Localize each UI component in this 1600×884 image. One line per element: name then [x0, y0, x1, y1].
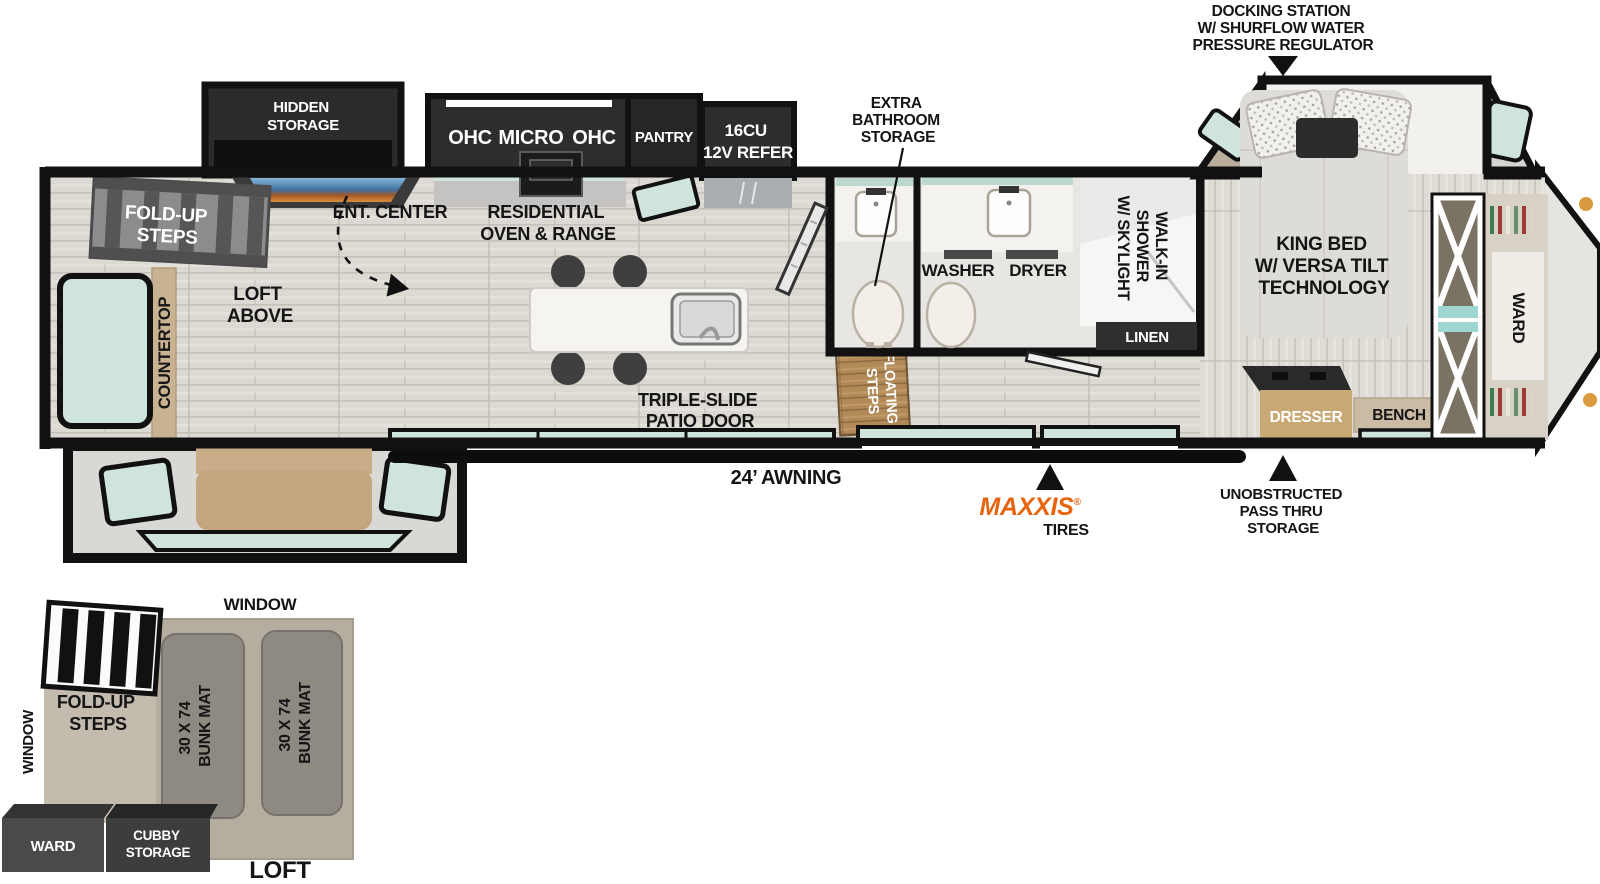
- bathroom-block: WASHER DRYER WALK-IN SHOWER W/ SKYLIGHT …: [830, 172, 1200, 352]
- laundry-sink: [988, 190, 1030, 236]
- docking-station-arrow: [1268, 56, 1298, 76]
- stool: [551, 351, 585, 385]
- loft-fold-up-steps-frame: [43, 602, 161, 694]
- dresser-label: DRESSER: [1270, 409, 1343, 426]
- rear-fold-up-steps: FOLD-UP STEPS: [90, 177, 270, 266]
- floating-steps: FLOATING STEPS: [836, 346, 910, 436]
- ohc-left-label: OHC: [448, 127, 492, 149]
- main-floorplan: HIDDEN STORAGE OHC MICRO OHC PANTRY: [45, 80, 1600, 558]
- wardrobe: WARD: [1432, 194, 1548, 440]
- cap-hinge-top: [1579, 197, 1593, 211]
- pantry: PANTRY: [628, 96, 700, 221]
- rear-window: [60, 276, 150, 426]
- slideout-window-right: [381, 458, 450, 520]
- pass-thru-label: UNOBSTRUCTED PASS THRU STORAGE: [1220, 486, 1346, 537]
- docking-station-label: DOCKING STATION W/ SHURFLOW WATER PRESSU…: [1193, 3, 1374, 54]
- pass-thru-storage: UNOBSTRUCTED PASS THRU STORAGE: [1220, 455, 1346, 537]
- pantry-label: PANTRY: [635, 129, 693, 146]
- ohc-right-label: OHC: [572, 127, 616, 149]
- bench-label: BENCH: [1372, 407, 1426, 424]
- hidden-storage-label: HIDDEN STORAGE: [267, 99, 339, 134]
- slideout-window-bottom: [140, 532, 408, 550]
- floorplan-svg: HIDDEN STORAGE OHC MICRO OHC PANTRY: [0, 0, 1600, 884]
- tires-arrow: [1036, 464, 1064, 490]
- stool: [551, 255, 585, 289]
- maxxis-logo: MAXXIS®: [979, 493, 1081, 521]
- bottom-window-1: [858, 427, 1034, 440]
- stool: [613, 255, 647, 289]
- loft-inset: FOLD-UP STEPS 30 X 74 BUNK MAT 30 X 74 B…: [2, 595, 353, 884]
- dryer-label: DRYER: [1009, 261, 1066, 280]
- tv-screen: [250, 178, 406, 202]
- micro-label: MICRO: [498, 127, 563, 149]
- tires-label: TIRES: [1043, 522, 1089, 539]
- hidden-storage-slideout: HIDDEN STORAGE: [205, 85, 401, 175]
- loft-above-label: LOFT ABOVE: [227, 284, 293, 327]
- patio-door-label: TRIPLE-SLIDE PATIO DOOR: [638, 390, 762, 431]
- laundry-toilet: [927, 283, 975, 347]
- king-bed: KING BED W/ VERSA TILT TECHNOLOGY: [1240, 88, 1412, 338]
- slideout-window-left: [100, 460, 175, 525]
- pass-thru-arrow: [1269, 455, 1297, 481]
- linen-label: LINEN: [1125, 329, 1169, 346]
- stool: [613, 351, 647, 385]
- rv-floorplan-screenshot: HIDDEN STORAGE OHC MICRO OHC PANTRY: [0, 0, 1600, 884]
- loft-title: LOFT: [249, 857, 311, 884]
- washer-front: [944, 250, 992, 259]
- ent-center-label: ENT. CENTER: [333, 202, 448, 222]
- washer-label: WASHER: [922, 261, 995, 280]
- awning-bar: [388, 450, 1246, 463]
- loft-ward: WARD: [2, 804, 114, 872]
- half-bath-toilet: [853, 281, 903, 347]
- cap-hinge-bottom: [1583, 393, 1597, 407]
- refrigerator: 16CU 12V REFER: [702, 104, 794, 208]
- walk-in-shower: WALK-IN SHOWER W/ SKYLIGHT: [1080, 176, 1196, 326]
- accent-pillow: [1296, 118, 1358, 158]
- kitchen-ohc-band: OHC MICRO OHC: [428, 96, 628, 207]
- extra-bath-storage-label: EXTRA BATHROOM STORAGE: [852, 95, 944, 146]
- awning-label: 24’ AWNING: [731, 467, 842, 489]
- loft-ward-label: WARD: [31, 838, 76, 855]
- loft-window-left-label: WINDOW: [20, 709, 37, 774]
- dryer-front: [1006, 250, 1058, 259]
- countertop-label: COUNTERTOP: [156, 297, 174, 409]
- sofa: [196, 470, 372, 530]
- maxxis-tires: MAXXIS® TIRES: [979, 464, 1089, 539]
- loft-cubby-storage: CUBBY STORAGE: [106, 804, 218, 872]
- barn-doors: [1432, 194, 1484, 440]
- ward-label: WARD: [1509, 293, 1528, 344]
- barn-door-accent: [1438, 322, 1478, 332]
- barn-door-accent: [1438, 306, 1478, 318]
- bottom-window-2: [1042, 427, 1178, 440]
- loft-window-top-label: WINDOW: [224, 595, 298, 614]
